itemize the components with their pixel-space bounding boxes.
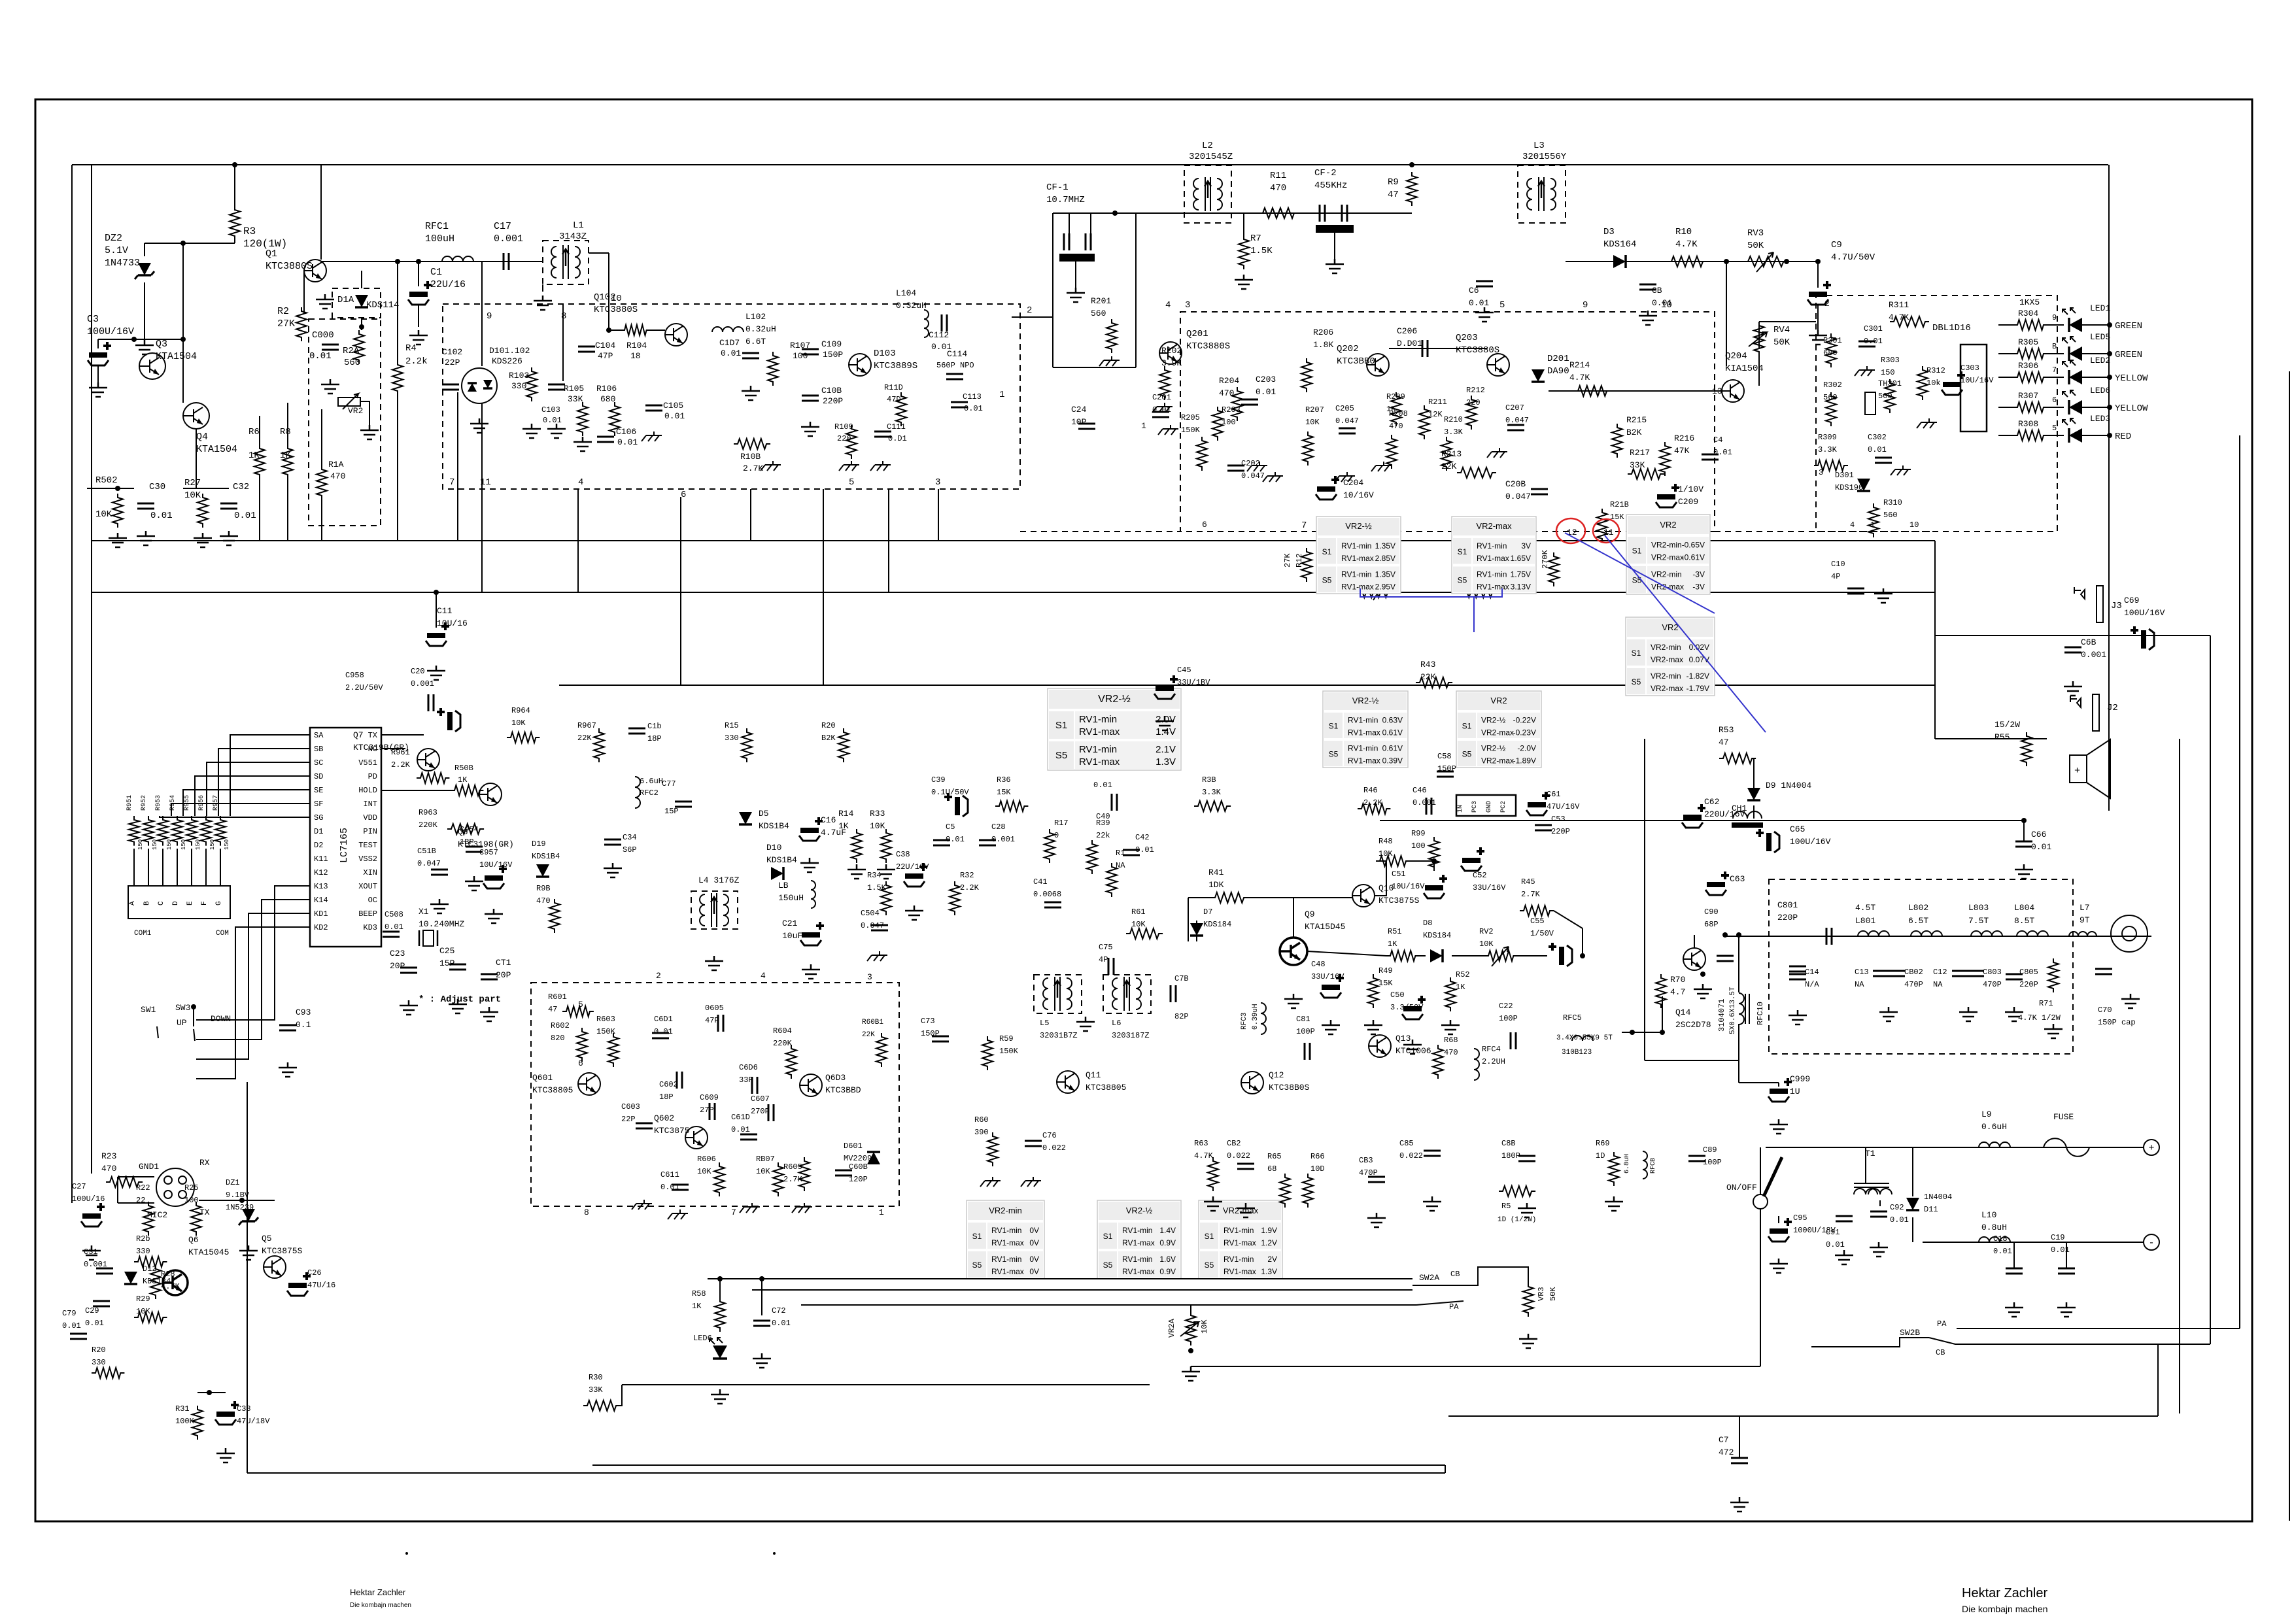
svg-text:RV1-max: RV1-max (1224, 1238, 1256, 1247)
svg-text:R65: R65 (1267, 1152, 1282, 1161)
svg-text:LED2: LED2 (2090, 356, 2110, 365)
svg-text:RV3: RV3 (1747, 228, 1764, 239)
svg-text:27P: 27P (700, 1106, 714, 1115)
svg-text:2.2U/50V: 2.2U/50V (345, 683, 383, 692)
svg-text:C93: C93 (296, 1007, 311, 1017)
svg-text:Hektar Zachler: Hektar Zachler (1962, 1586, 2047, 1600)
svg-text:-1.79V: -1.79V (1686, 684, 1709, 693)
svg-text:DZ1: DZ1 (226, 1178, 240, 1187)
svg-text:-3V: -3V (1692, 570, 1705, 579)
svg-text:R12: R12 (1295, 553, 1304, 567)
svg-text:100P: 100P (1499, 1014, 1518, 1023)
svg-text:Q601: Q601 (532, 1073, 553, 1083)
svg-text:C23: C23 (390, 949, 405, 958)
svg-text:PC2: PC2 (1500, 801, 1507, 813)
svg-text:22K: 22K (577, 734, 592, 743)
svg-text:CF-1: CF-1 (1046, 182, 1069, 193)
svg-text:S5: S5 (1205, 1260, 1214, 1270)
svg-text:1BP: 1BP (460, 837, 474, 847)
svg-text:C999: C999 (1790, 1074, 1810, 1084)
svg-text:470: 470 (101, 1164, 116, 1174)
svg-text:50K: 50K (1747, 241, 1764, 251)
svg-text:L6: L6 (1112, 1019, 1121, 1028)
svg-text:C1: C1 (430, 267, 442, 278)
svg-text:R7: R7 (1250, 233, 1261, 244)
svg-text:R48: R48 (1378, 837, 1393, 846)
svg-text:6: 6 (1202, 520, 1207, 530)
svg-text:L803: L803 (1968, 903, 1989, 913)
svg-text:C51B: C51B (417, 847, 436, 856)
svg-text:Q203: Q203 (1456, 333, 1478, 343)
svg-text:1.75V: 1.75V (1511, 569, 1531, 579)
svg-text:0V: 0V (1029, 1226, 1039, 1235)
svg-text:S5: S5 (1632, 576, 1642, 585)
svg-text:C25: C25 (439, 946, 454, 956)
svg-text:15K: 15K (997, 788, 1011, 797)
svg-text:L102: L102 (745, 312, 766, 322)
svg-text:R312: R312 (1926, 366, 1945, 375)
svg-text:C95: C95 (1793, 1213, 1807, 1223)
svg-text:VR2-max: VR2-max (1476, 521, 1512, 531)
svg-text:GREEN: GREEN (2115, 321, 2142, 331)
svg-text:2.2UH: 2.2UH (1482, 1057, 1505, 1066)
svg-text:KTC3880S: KTC3880S (265, 261, 313, 272)
svg-text:C14: C14 (1805, 968, 1819, 977)
svg-text:47U/16V: 47U/16V (1547, 802, 1580, 811)
svg-text:150: 150 (1881, 368, 1895, 377)
svg-text:RV1-min: RV1-min (1348, 744, 1378, 753)
svg-text:1KX5: 1KX5 (2019, 297, 2040, 307)
svg-text:R20: R20 (92, 1345, 106, 1355)
svg-text:RV2: RV2 (1479, 927, 1494, 936)
svg-text:0.01: 0.01 (660, 1183, 679, 1192)
svg-text:680: 680 (600, 394, 615, 404)
svg-text:2: 2 (1027, 305, 1032, 316)
svg-text:R11D: R11D (884, 383, 903, 392)
svg-text:0.9V: 0.9V (1159, 1238, 1176, 1247)
svg-text:0.047: 0.047 (1241, 471, 1265, 481)
svg-text:2.2K: 2.2K (1363, 798, 1383, 807)
svg-text:0.1U/50V: 0.1U/50V (931, 788, 969, 797)
svg-text:310B123: 310B123 (1562, 1049, 1592, 1057)
svg-text:R52: R52 (1456, 970, 1470, 979)
svg-text:R8: R8 (280, 427, 291, 437)
svg-text:C72: C72 (772, 1306, 786, 1315)
svg-text:LED6: LED6 (2090, 386, 2110, 396)
svg-text:47: 47 (1388, 190, 1399, 200)
svg-text:C5: C5 (946, 822, 955, 832)
svg-text:470P: 470P (1359, 1168, 1378, 1177)
svg-text:0.01: 0.01 (731, 1125, 750, 1134)
svg-text:C102: C102 (442, 347, 462, 357)
svg-text:R45: R45 (1521, 877, 1535, 887)
svg-text:0.01: 0.01 (772, 1319, 791, 1328)
svg-text:R205: R205 (1181, 413, 1200, 422)
svg-text:3.3K: 3.3K (1444, 428, 1464, 437)
svg-text:C89: C89 (1703, 1145, 1717, 1155)
svg-text:22P: 22P (445, 358, 460, 367)
svg-text:27K: 27K (1283, 553, 1292, 567)
svg-text:15P: 15P (664, 807, 679, 816)
svg-text:R99: R99 (1411, 829, 1426, 838)
svg-text:0.0068: 0.0068 (1033, 890, 1061, 899)
svg-text:RV1-min: RV1-min (991, 1226, 1021, 1235)
svg-text:UP: UP (177, 1018, 187, 1028)
svg-text:TX: TX (199, 1208, 210, 1217)
svg-text:C61: C61 (1547, 790, 1561, 799)
svg-text:C954: C954 (460, 825, 479, 834)
svg-text:R310: R310 (1883, 498, 1902, 507)
svg-text:6: 6 (681, 490, 686, 500)
svg-text:0.01: 0.01 (1469, 298, 1489, 308)
svg-text:150K: 150K (999, 1047, 1019, 1056)
svg-text:LED5: LED5 (2090, 332, 2110, 342)
svg-text:R63: R63 (1194, 1139, 1208, 1148)
svg-text:S5: S5 (1322, 575, 1332, 584)
svg-text:RV1-max: RV1-max (1341, 582, 1374, 591)
svg-text:2.95V: 2.95V (1375, 582, 1395, 591)
svg-text:D11: D11 (1924, 1205, 1938, 1214)
svg-text:C29: C29 (85, 1306, 99, 1315)
svg-text:C106: C106 (616, 427, 636, 437)
svg-text:C31: C31 (84, 1247, 98, 1257)
svg-text:0.32uH: 0.32uH (896, 301, 927, 311)
svg-text:1K: 1K (838, 821, 849, 831)
svg-text:R605: R605 (783, 1162, 802, 1172)
svg-text:A: A (129, 901, 137, 905)
svg-text:560: 560 (344, 358, 360, 368)
svg-text:RV1-min: RV1-min (1477, 569, 1507, 579)
svg-text:R309: R309 (1818, 433, 1837, 442)
svg-text:-0.61V: -0.61V (1682, 553, 1705, 562)
svg-text:KTA1504: KTA1504 (156, 351, 197, 362)
svg-text:B: B (143, 901, 151, 905)
svg-text:D19: D19 (532, 839, 546, 849)
svg-text:R104: R104 (626, 341, 647, 350)
svg-text:C27: C27 (72, 1182, 86, 1191)
svg-text:GND: GND (1486, 801, 1493, 813)
svg-text:RV1-min: RV1-min (1122, 1226, 1152, 1235)
svg-text:C26: C26 (307, 1268, 322, 1277)
svg-text:R961: R961 (391, 748, 410, 757)
svg-text:4: 4 (1165, 300, 1171, 311)
svg-text:KDS184: KDS184 (1423, 931, 1451, 940)
svg-text:C958: C958 (345, 671, 364, 680)
svg-text:680: 680 (1823, 348, 1838, 358)
svg-text:1D (1/2W): 1D (1/2W) (1498, 1216, 1536, 1224)
svg-text:-: - (2148, 1238, 2154, 1249)
svg-text:22K: 22K (1420, 672, 1436, 682)
svg-text:0.39uH: 0.39uH (1252, 1004, 1259, 1030)
svg-text:C33: C33 (237, 1404, 251, 1413)
svg-text:0.6uH: 0.6uH (1981, 1122, 2007, 1132)
svg-text:C10: C10 (1831, 560, 1845, 569)
svg-text:C53: C53 (1551, 815, 1566, 824)
svg-text:GREEN: GREEN (2115, 350, 2142, 360)
svg-text:Q201: Q201 (1186, 329, 1208, 339)
svg-text:RV1-min: RV1-min (1079, 744, 1117, 755)
svg-text:KTC3875S: KTC3875S (1378, 896, 1420, 905)
svg-text:R58: R58 (692, 1289, 706, 1298)
svg-text:C1b: C1b (647, 722, 662, 731)
svg-text:1D: 1D (1596, 1151, 1605, 1160)
svg-text:2: 2 (1824, 299, 1830, 309)
svg-text:220P: 220P (1777, 913, 1798, 922)
svg-text:R967: R967 (577, 721, 596, 730)
svg-text:0.01: 0.01 (385, 922, 403, 932)
svg-text:Q5: Q5 (262, 1234, 272, 1243)
svg-text:VR2A: VR2A (1167, 1318, 1176, 1338)
svg-text:E: E (186, 901, 194, 905)
svg-text:560P NPO: 560P NPO (936, 361, 974, 370)
svg-text:0.01: 0.01 (946, 835, 965, 844)
svg-text:C206: C206 (1397, 326, 1417, 336)
svg-text:SC: SC (314, 758, 323, 768)
svg-text:2SC2D78: 2SC2D78 (1675, 1020, 1711, 1030)
svg-text:C85: C85 (1399, 1139, 1414, 1148)
svg-text:VR2-min: VR2-min (1651, 570, 1682, 579)
svg-text:RB07: RB07 (756, 1155, 775, 1164)
svg-text:C6: C6 (1469, 286, 1479, 296)
svg-text:+: + (2074, 766, 2080, 777)
svg-text:KDS226: KDS226 (492, 356, 522, 366)
svg-text:SD: SD (314, 772, 323, 781)
svg-text:PA: PA (1449, 1302, 1459, 1311)
svg-text:0.9V: 0.9V (1159, 1267, 1176, 1276)
svg-text:0.8uH: 0.8uH (1981, 1223, 2007, 1232)
svg-text:2.2K: 2.2K (960, 883, 980, 892)
svg-text:VR3: VR3 (1537, 1287, 1546, 1301)
svg-text:0V: 0V (1029, 1255, 1039, 1264)
svg-text:1N4733: 1N4733 (105, 258, 140, 269)
svg-text:15/2W: 15/2W (1994, 720, 2020, 730)
svg-text:XOUT: XOUT (358, 882, 377, 891)
svg-text:0.001: 0.001 (2081, 650, 2106, 660)
svg-text:100P: 100P (1296, 1027, 1315, 1036)
svg-text:6.8uH: 6.8uH (1624, 1154, 1631, 1174)
svg-text:220P: 220P (1551, 827, 1570, 836)
svg-text:V551: V551 (358, 758, 377, 768)
svg-text:Q102: Q102 (594, 292, 616, 303)
svg-text:500: 500 (1878, 392, 1892, 401)
svg-text:9: 9 (487, 311, 492, 322)
svg-text:100: 100 (1222, 418, 1236, 427)
svg-text:C13: C13 (1855, 968, 1869, 977)
svg-text:8: 8 (561, 311, 566, 322)
svg-text:R213: R213 (1441, 449, 1462, 459)
svg-text:330: 330 (136, 1247, 150, 1256)
svg-text:R4: R4 (405, 343, 417, 354)
svg-text:10K: 10K (1479, 939, 1494, 949)
svg-text:18P: 18P (659, 1092, 674, 1102)
svg-text:0.01: 0.01 (62, 1321, 81, 1330)
svg-text:C81: C81 (1296, 1015, 1310, 1024)
svg-text:220K: 220K (419, 820, 438, 830)
svg-text:R208: R208 (1389, 409, 1408, 418)
svg-text:3.3K: 3.3K (1818, 445, 1838, 454)
svg-text:D3: D3 (1603, 227, 1615, 237)
svg-text:RV1-max: RV1-max (1079, 726, 1120, 737)
svg-text:R109: R109 (834, 422, 853, 431)
svg-text:C58: C58 (1437, 752, 1452, 761)
svg-text:10K: 10K (511, 719, 526, 728)
svg-text:R2: R2 (277, 306, 289, 317)
svg-text:0.01: 0.01 (617, 437, 638, 447)
svg-text:-0.23V: -0.23V (1513, 728, 1536, 737)
svg-text:0.61V: 0.61V (1382, 728, 1403, 737)
svg-text:R20: R20 (821, 721, 836, 730)
svg-text:VR2-max: VR2-max (1481, 756, 1514, 766)
svg-text:R954: R954 (169, 795, 177, 811)
svg-text:R9: R9 (1388, 177, 1399, 188)
svg-text:2V: 2V (1267, 1255, 1277, 1264)
svg-text:0.001: 0.001 (411, 679, 434, 688)
svg-text:R21B: R21B (1610, 500, 1629, 509)
svg-text:VR2-½: VR2-½ (1352, 696, 1379, 705)
svg-text:10K: 10K (697, 1167, 711, 1176)
svg-text:Q12: Q12 (1269, 1070, 1284, 1080)
svg-text:R55: R55 (1994, 732, 2010, 742)
svg-text:VR2-½: VR2-½ (1481, 716, 1505, 725)
svg-text:0.01: 0.01 (234, 511, 256, 521)
svg-text:C112: C112 (929, 330, 949, 340)
svg-text:C90: C90 (1704, 907, 1719, 917)
svg-text:22k: 22k (1096, 831, 1110, 840)
svg-text:K14: K14 (314, 896, 328, 905)
svg-text:220K: 220K (773, 1039, 793, 1048)
svg-text:R201: R201 (1091, 296, 1111, 306)
svg-text:150: 150 (224, 839, 230, 850)
svg-text:R51: R51 (1388, 927, 1402, 936)
svg-text:CB2: CB2 (1227, 1139, 1241, 1148)
svg-text:3.4X0.55X9 5T: 3.4X0.55X9 5T (1556, 1034, 1613, 1042)
svg-text:220P: 220P (2019, 980, 2038, 989)
svg-text:0.01: 0.01 (543, 416, 562, 425)
svg-text:SW2A: SW2A (1419, 1273, 1439, 1283)
svg-text:RV1-max: RV1-max (1079, 756, 1120, 768)
svg-text:L5: L5 (1040, 1019, 1049, 1028)
svg-text:KDS1B4: KDS1B4 (532, 852, 560, 861)
svg-text:KDS1B4: KDS1B4 (766, 855, 797, 865)
svg-text:2.7K: 2.7K (1521, 890, 1541, 899)
svg-text:1.9V: 1.9V (1261, 1226, 1277, 1235)
svg-text:0.01: 0.01 (1868, 445, 1887, 454)
svg-text:9.1BV: 9.1BV (226, 1191, 250, 1200)
svg-text:4.7K: 4.7K (1569, 373, 1590, 382)
svg-text:0.001: 0.001 (84, 1260, 107, 1269)
svg-text:-0.65V: -0.65V (1682, 541, 1705, 550)
svg-text:4P: 4P (1099, 955, 1108, 964)
svg-text:KTC3889S: KTC3889S (874, 361, 917, 371)
svg-text:R6: R6 (248, 427, 260, 437)
svg-text:D103: D103 (874, 348, 896, 359)
svg-text:9: 9 (2052, 313, 2057, 322)
svg-text:R216: R216 (1674, 433, 1694, 443)
svg-text:S5: S5 (1329, 750, 1339, 759)
svg-text:0.001: 0.001 (494, 233, 523, 245)
svg-text:0605: 0605 (705, 1004, 724, 1013)
svg-text:D2: D2 (314, 841, 323, 850)
svg-text:47U/18V: 47U/18V (237, 1417, 270, 1426)
svg-text:VR2-max: VR2-max (1223, 1206, 1259, 1215)
svg-text:0V: 0V (1029, 1238, 1039, 1247)
svg-text:220: 220 (837, 434, 851, 443)
svg-text:RV1-min: RV1-min (1079, 714, 1117, 725)
svg-text:0.047: 0.047 (1505, 416, 1529, 425)
svg-text:R46: R46 (1363, 786, 1378, 795)
svg-text:C603: C603 (621, 1102, 640, 1111)
svg-text:1: 1 (1141, 421, 1146, 431)
svg-text:C21: C21 (782, 919, 798, 928)
svg-text:C: C (158, 901, 165, 905)
svg-text:S1: S1 (972, 1232, 982, 1241)
svg-text:Q3: Q3 (156, 339, 167, 350)
svg-text:KD3: KD3 (363, 923, 377, 932)
svg-text:C38: C38 (896, 850, 910, 859)
svg-text:RV1-min: RV1-min (1224, 1226, 1254, 1235)
svg-text:330: 330 (511, 381, 526, 391)
svg-text:DA90: DA90 (1547, 366, 1569, 377)
svg-text:C16: C16 (821, 815, 836, 825)
svg-text:Q6: Q6 (188, 1235, 199, 1245)
svg-text:C77: C77 (662, 779, 676, 788)
svg-text:10: 10 (1661, 300, 1672, 311)
svg-text:50K: 50K (1549, 1287, 1558, 1301)
svg-text:22K: 22K (862, 1031, 875, 1039)
svg-text:0.047: 0.047 (417, 859, 441, 868)
svg-text:R23: R23 (101, 1151, 116, 1161)
svg-text:RFC10: RFC10 (1756, 1002, 1765, 1025)
svg-text:RFCB: RFCB (1650, 1158, 1657, 1174)
svg-text:C60B: C60B (849, 1162, 868, 1172)
svg-text:D.D01: D.D01 (1397, 339, 1422, 348)
svg-text:3.13V: 3.13V (1511, 582, 1531, 591)
svg-text:150K: 150K (596, 1027, 616, 1036)
svg-text:C301: C301 (1864, 324, 1883, 333)
svg-text:R70: R70 (1670, 975, 1685, 985)
svg-text:YELLOW: YELLOW (2115, 403, 2148, 414)
svg-text:R10B: R10B (740, 452, 761, 462)
svg-text:C113: C113 (963, 392, 982, 401)
svg-text:KTC3875: KTC3875 (654, 1126, 690, 1136)
svg-text:VR2-min: VR2-min (1651, 541, 1682, 550)
svg-text:1.3V: 1.3V (1156, 756, 1176, 768)
svg-text:KTC3BBD: KTC3BBD (825, 1085, 861, 1095)
svg-text:Q9: Q9 (1305, 909, 1315, 919)
svg-text:0: 0 (1054, 831, 1059, 840)
svg-text:C45: C45 (1177, 666, 1191, 675)
svg-text:LED1: LED1 (2090, 303, 2110, 313)
svg-text:RV1-min: RV1-min (1341, 569, 1371, 579)
svg-text:RV1-max: RV1-max (1224, 1267, 1256, 1276)
svg-text:C42: C42 (1135, 833, 1150, 842)
svg-text:S1: S1 (1322, 547, 1332, 556)
svg-text:C41: C41 (1033, 877, 1048, 887)
svg-text:L801: L801 (1855, 916, 1875, 926)
svg-text:C6D1: C6D1 (654, 1015, 673, 1024)
svg-text:SA: SA (314, 731, 324, 740)
svg-text:R2b: R2b (136, 1234, 150, 1243)
svg-text:7: 7 (449, 477, 454, 488)
svg-text:100K: 100K (175, 1417, 195, 1426)
svg-text:0.01: 0.01 (1993, 1247, 2012, 1256)
svg-text:C111: C111 (887, 422, 906, 431)
svg-text:CB02: CB02 (1904, 968, 1923, 977)
svg-text:1N5239: 1N5239 (226, 1203, 254, 1212)
svg-text:R66: R66 (1310, 1152, 1325, 1161)
svg-text:C52: C52 (1473, 871, 1487, 880)
svg-text:47P: 47P (705, 1016, 719, 1025)
